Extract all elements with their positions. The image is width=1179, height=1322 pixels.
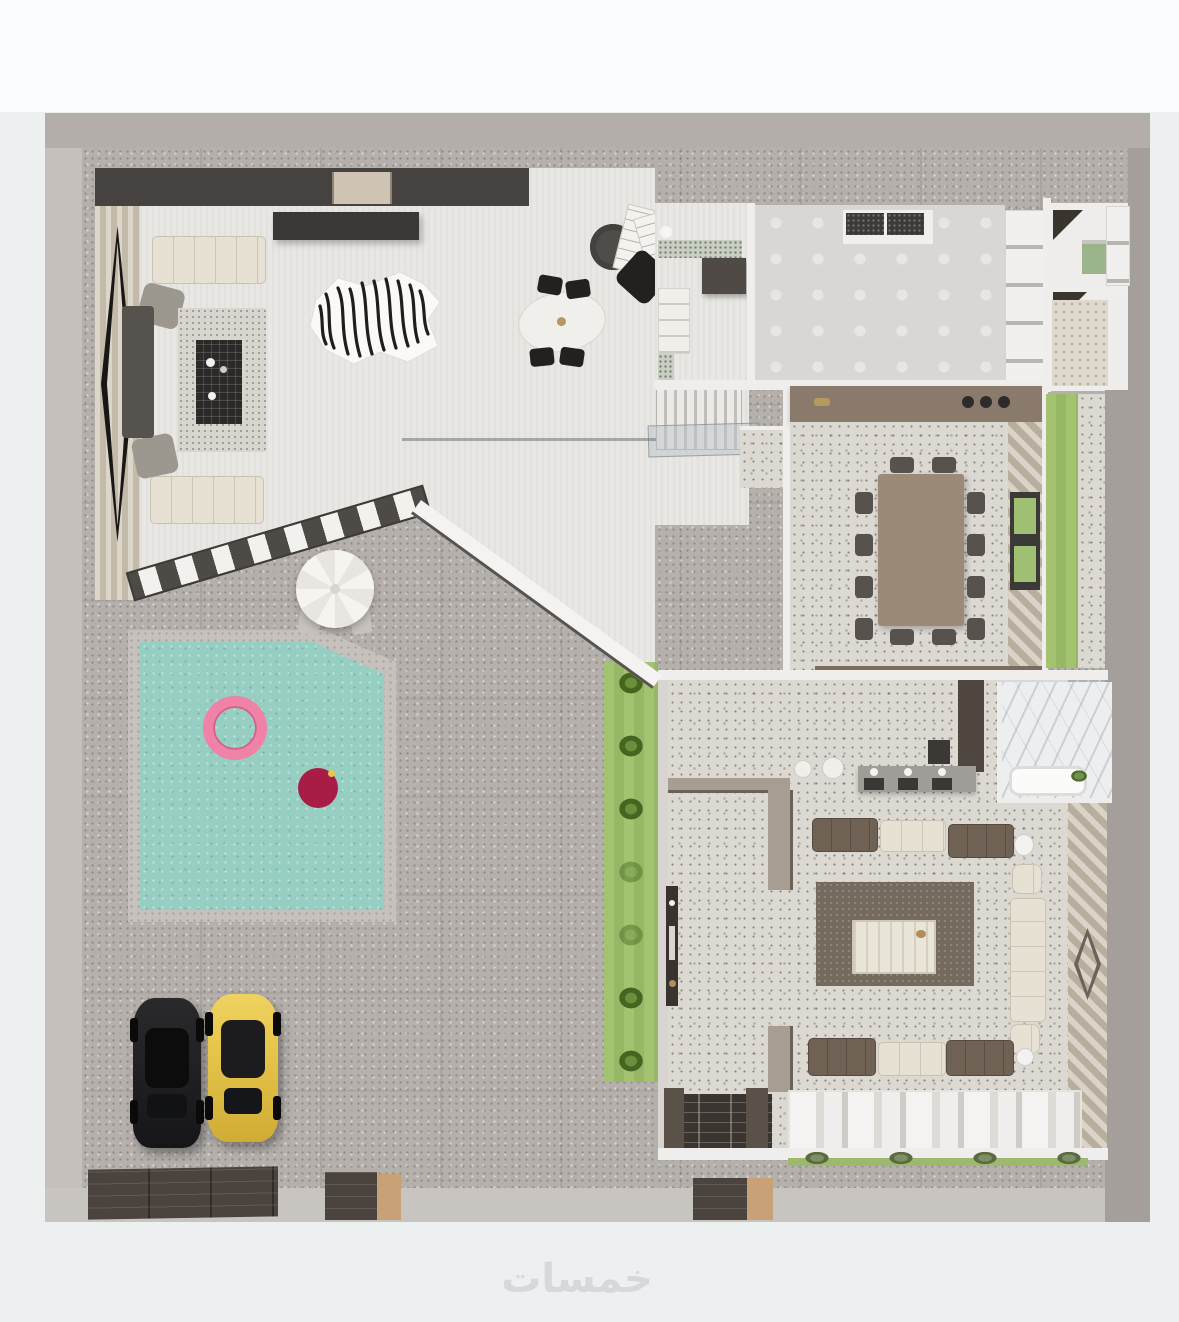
shrub [614,857,648,887]
dining-chair [932,457,956,473]
pool-float-donut [203,696,267,760]
zebra-rug [296,262,446,374]
window-pane [1014,546,1036,582]
dining-chair [967,618,985,640]
dining-chair [967,576,985,598]
cooktop-knob [980,396,992,408]
terrace-bushes [800,1148,1086,1168]
side-garden-lawn [1046,394,1078,668]
majlis-armchair [1012,864,1042,894]
dining-chair [890,629,914,645]
breakfast-chair [529,347,555,367]
dining-chair [855,618,873,640]
shrub [800,1149,834,1167]
bath-plant [1068,768,1090,784]
tv-console [273,212,419,240]
outer-wall-top [45,113,1150,148]
dining-chair [855,492,873,514]
wall-hall-bedroom [747,203,755,385]
shrub [614,920,648,950]
wash-area-wall [958,680,984,772]
majlis-coffee-table [852,920,936,974]
living-sofa-bottom [150,476,264,524]
sink-basin [660,226,672,238]
entry-pillar [746,1088,768,1152]
dining-chair [855,576,873,598]
dining-chair [855,534,873,556]
dining-chairs-bottom [890,628,956,646]
pool-float-round [298,768,338,808]
wardrobe-closets [1005,210,1045,384]
car-wheel [273,1012,281,1036]
garage-gate [88,1166,278,1219]
dining-chair [967,534,985,556]
sink-faucet [904,768,912,776]
living-sofa-top [152,236,266,284]
shrub [614,731,648,761]
bath-mosaic-floor [1052,300,1108,386]
table-vase [556,316,566,326]
bath-cabinet [1106,206,1130,286]
majlis-sofa-cream [880,820,946,852]
float-dot [328,770,335,777]
shrub [1052,1149,1086,1167]
living-side-sofa [122,306,154,438]
console-panel [669,926,675,960]
table-dish [206,358,215,367]
majlis-sofa-brown [948,824,1014,858]
umbrella-cap [330,584,340,594]
car-windshield [224,1088,262,1114]
dining-window-green [1010,492,1040,590]
watermark-text: خمسات [477,1252,677,1306]
terrace-striped-rug [788,1090,1082,1154]
cooktop-unit [702,258,746,294]
planter-pot [794,760,812,778]
bedroom-doormat [843,210,933,244]
dining-chair [890,457,914,473]
car-windshield [147,1094,187,1118]
living-north-wall [95,168,529,206]
armchair-bottom [130,432,179,480]
sink-faucet [870,768,878,776]
hall-cabinet [658,288,690,354]
majlis-long-sofa [1010,898,1046,1022]
counter-handles [814,398,830,406]
pedestrian-gate [325,1172,377,1220]
majlis-sofa-brown [808,1038,876,1076]
wall-dining-left [783,388,790,678]
window-pane [1014,498,1036,534]
car-black [133,998,201,1148]
table-dish [220,366,227,373]
car-glass [145,1028,189,1088]
entry-double-door [332,172,392,204]
dining-chairs-top [890,456,956,474]
sink-faucet [938,768,946,776]
dining-chairs-right [966,492,986,640]
wash-counter [858,766,976,792]
car-wheel [196,1100,204,1124]
shrub [614,983,648,1013]
railing-line [402,438,656,441]
gate-ramp [747,1178,773,1220]
majlis-sofa-brown [812,818,878,852]
sink-unit [898,778,918,790]
car-wheel [196,1018,204,1042]
majlis-north-wall [658,670,1108,680]
coffee-table-black [196,340,242,424]
shrub [614,794,648,824]
majlis-entry-wall-v [768,790,793,890]
table-ornament [916,930,926,938]
cooktop-knob [962,396,974,408]
dining-chair [967,492,985,514]
doormat-panel [846,213,884,235]
majlis-sofa-cream [878,1042,946,1076]
dining-table [878,474,964,626]
cooktop-knob [998,396,1010,408]
breakfast-chair [537,274,564,296]
kitchenette-counter [658,240,742,258]
gate-ramp [377,1174,401,1220]
car-wheel [130,1018,138,1042]
console-knob [669,900,675,906]
car-glass [221,1020,265,1078]
car-yellow [208,994,278,1142]
wash-area-box [928,740,950,764]
car-wheel [130,1100,138,1124]
shrub [968,1149,1002,1167]
dining-counter [790,386,1042,422]
entry-pillar [664,1088,684,1152]
car-wheel [205,1096,213,1120]
side-table [1014,834,1034,856]
floor-plan-render: خمسات [0,0,1179,1322]
wall-console [666,886,678,1006]
dining-chairs-left [854,492,874,640]
dining-chair [932,629,956,645]
breakfast-chair [565,278,591,299]
wood-diamond-inlay [1074,928,1101,1000]
doormat-panel [887,213,924,235]
pool-water [140,642,384,910]
breakfast-chair [559,346,585,367]
planter-pot [822,757,844,779]
wall-bedroom-right [1043,198,1051,392]
shrub [614,1046,648,1076]
hedge-bushes [604,668,658,1076]
car-wheel [205,1012,213,1036]
table-dish [208,392,216,400]
sink-unit [932,778,952,790]
console-knob [669,980,676,987]
outer-wall-left [45,148,82,1188]
wood-diamond-inner [1078,936,1097,992]
sink-unit [864,778,884,790]
shrub [884,1149,918,1167]
outer-wall-right-upper [1128,148,1150,392]
marble-bathroom [997,682,1112,803]
majlis-sofa-brown [946,1040,1014,1076]
side-garden-path [1078,394,1105,668]
outer-wall-right-lower [1105,390,1150,1222]
car-wheel [273,1096,281,1120]
rear-gate [693,1178,747,1220]
side-table [1016,1048,1034,1066]
majlis-lower-wall-v [768,1026,793,1092]
green-vanity [1082,240,1108,274]
